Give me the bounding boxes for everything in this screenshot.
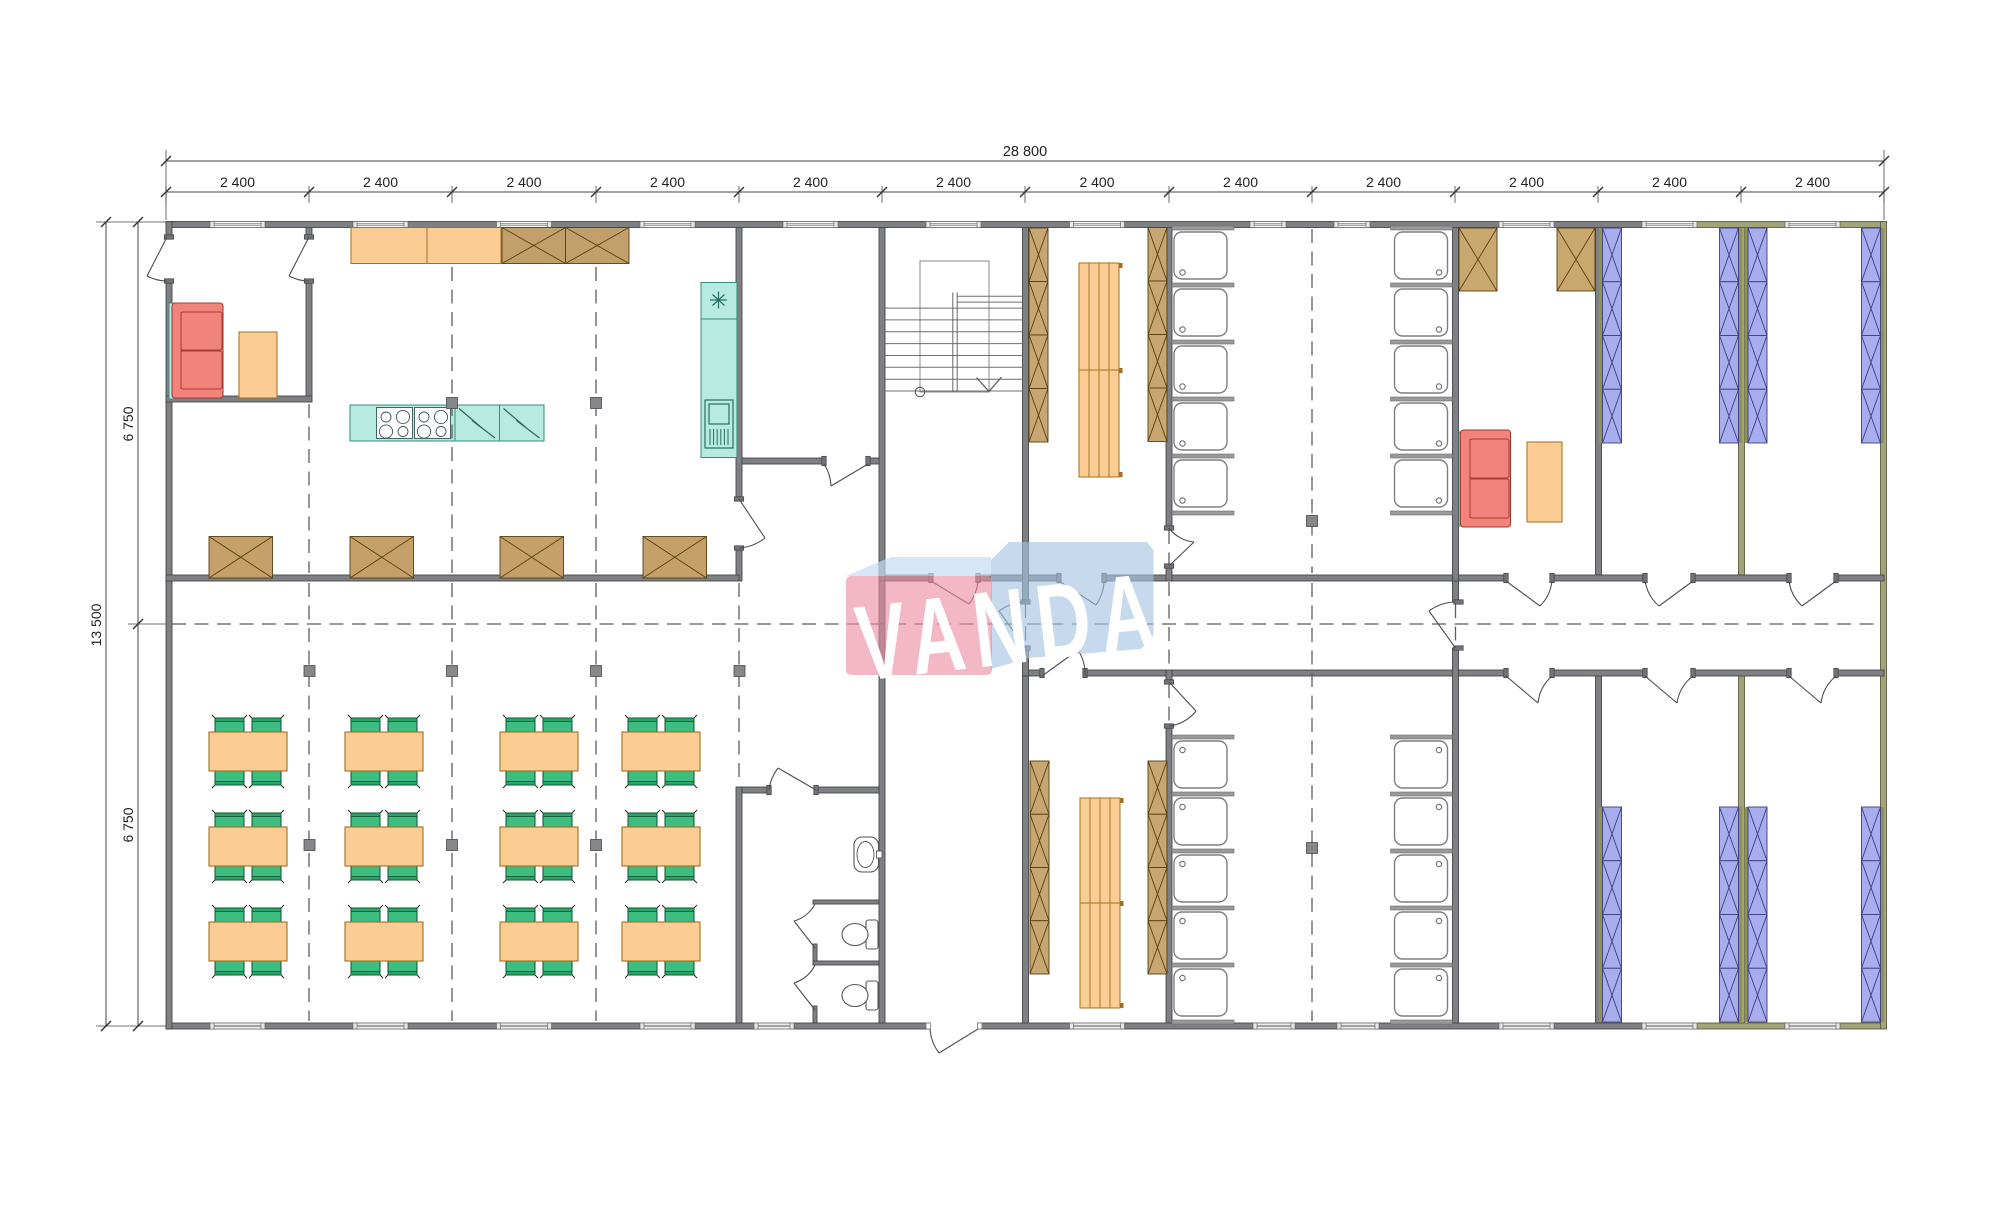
svg-text:13 500: 13 500 [88, 603, 104, 646]
svg-text:2 400: 2 400 [1366, 174, 1401, 190]
svg-text:2 400: 2 400 [1795, 174, 1830, 190]
svg-text:2 400: 2 400 [650, 174, 685, 190]
svg-text:2 400: 2 400 [220, 174, 255, 190]
svg-text:6 750: 6 750 [120, 406, 136, 441]
svg-text:2 400: 2 400 [793, 174, 828, 190]
svg-text:2 400: 2 400 [936, 174, 971, 190]
svg-text:28 800: 28 800 [1003, 144, 1047, 160]
svg-text:2 400: 2 400 [1509, 174, 1544, 190]
svg-text:2 400: 2 400 [1652, 174, 1687, 190]
svg-text:6 750: 6 750 [120, 807, 136, 842]
svg-text:2 400: 2 400 [363, 174, 398, 190]
svg-text:2 400: 2 400 [1223, 174, 1258, 190]
svg-text:2 400: 2 400 [506, 174, 541, 190]
svg-text:2 400: 2 400 [1079, 174, 1114, 190]
